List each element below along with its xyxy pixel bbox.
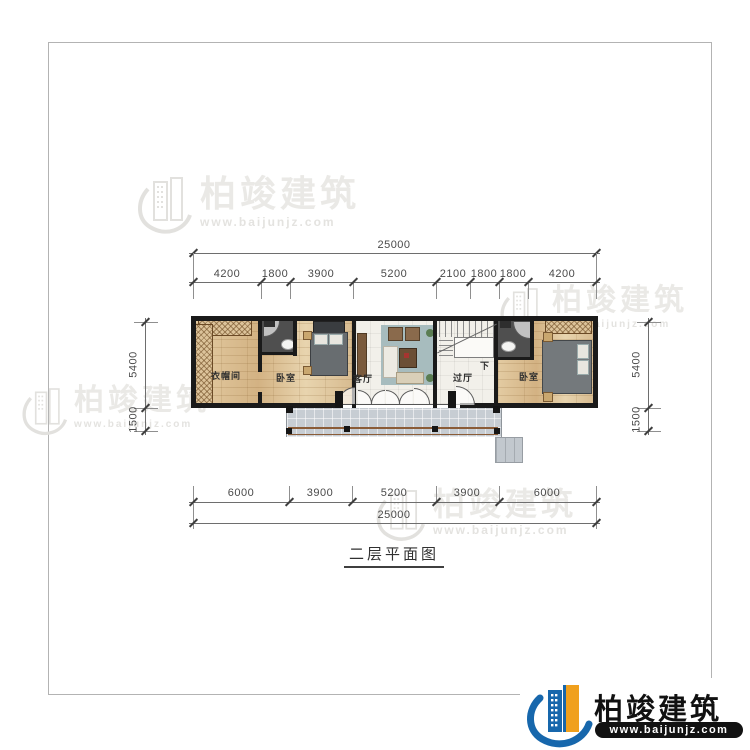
wall-hall-bedroom — [494, 316, 498, 408]
dim-label-left-upper: 5400 — [128, 343, 141, 387]
wall-cloakroom-bedroom-bottom — [258, 392, 262, 408]
coffee-table — [399, 348, 417, 368]
wall-cloakroom-bedroom-top — [258, 316, 262, 372]
dim-label: 4200 — [205, 268, 249, 280]
railing-post — [344, 426, 350, 432]
wall-top — [191, 316, 598, 321]
railing-post — [493, 406, 500, 413]
room-label-living: 客厅 — [343, 372, 383, 385]
bench — [396, 372, 424, 384]
dim-label-right-upper: 5400 — [631, 343, 644, 387]
railing-post — [432, 426, 438, 432]
dim-line-bottom-total — [189, 523, 600, 524]
toilet-right — [501, 341, 516, 352]
watermark-url-text: www.baijunjz.com — [200, 215, 360, 229]
bathroom-right-vanity — [500, 320, 511, 328]
brand-logo-icon — [524, 682, 594, 748]
dim-witness-line — [290, 282, 291, 299]
wall-bottom-left — [191, 403, 340, 408]
bed-right-pillow — [577, 360, 589, 375]
wall-living-hall — [433, 316, 437, 408]
dim-label: 1800 — [253, 268, 297, 280]
dim-label-top-total: 25000 — [372, 239, 416, 251]
dim-witness-line — [353, 282, 354, 299]
railing-post — [286, 428, 292, 434]
bed-left-pillow — [329, 334, 343, 345]
bed-right-pillow — [577, 344, 589, 359]
dim-witness-line — [596, 503, 597, 529]
room-label-cloakroom: 衣帽间 — [206, 369, 246, 382]
table-decor — [404, 353, 409, 358]
stair-down-label: 下 — [479, 359, 491, 372]
wall-bathroom-left-bottom — [262, 352, 297, 355]
watermark-left: 柏竣建筑 www.baijunjz.com — [20, 386, 210, 440]
railing-post — [494, 428, 500, 434]
watermark-building-icon — [135, 176, 193, 238]
drawing-title-underline — [344, 566, 444, 568]
brand-logo: 柏竣建筑 www.baijunjz.com — [520, 678, 750, 750]
armchair — [388, 327, 403, 341]
dim-label: 6000 — [219, 487, 263, 499]
watermark-top-left: 柏竣建筑 www.baijunjz.com — [135, 176, 360, 238]
armchair — [405, 327, 420, 341]
nightstand — [303, 331, 312, 340]
wardrobe-cloakroom-left — [195, 324, 213, 405]
dim-witness-line — [596, 282, 597, 299]
dim-label: 3900 — [299, 268, 343, 280]
dim-witness-line — [261, 282, 262, 299]
nightstand — [543, 392, 553, 402]
dim-witness-line — [499, 282, 500, 299]
dim-witness-line — [193, 282, 194, 299]
dim-witness-line — [596, 253, 597, 282]
dim-label: 3900 — [445, 487, 489, 499]
dim-witness-line — [436, 282, 437, 299]
watermark-url-text: www.baijunjz.com — [433, 523, 577, 537]
dim-line-bottom-segments — [189, 502, 600, 503]
balcony-railing — [288, 427, 498, 435]
wall-left — [191, 316, 196, 408]
wall-bottom-right — [460, 403, 598, 408]
dim-line-top-segments — [189, 282, 600, 283]
balcony-side-platform — [495, 437, 523, 463]
watermark-brand-text: 柏竣建筑 — [552, 286, 688, 316]
room-label-bedroom-left: 卧室 — [266, 371, 306, 384]
brand-url: www.baijunjz.com — [595, 722, 743, 738]
wall-pier — [335, 391, 343, 408]
drawing-title: 二层平面图 — [314, 543, 474, 564]
wall-bathroom-left-right — [293, 316, 297, 356]
dim-label-bottom-total: 25000 — [372, 509, 416, 521]
dim-line-top-total — [189, 253, 600, 254]
dim-witness-line — [528, 282, 529, 299]
dim-label: 3900 — [298, 487, 342, 499]
dim-label: 5200 — [372, 487, 416, 499]
dim-label-right-lower: 1500 — [631, 398, 644, 442]
room-label-hall: 过厅 — [443, 371, 483, 384]
dim-label: 6000 — [525, 487, 569, 499]
nightstand — [543, 332, 553, 342]
wall-right — [593, 316, 598, 408]
dim-witness-line — [193, 253, 194, 282]
dim-label-left-lower: 1500 — [128, 398, 141, 442]
dim-witness-line — [193, 503, 194, 529]
room-label-bedroom-right: 卧室 — [509, 370, 549, 383]
dim-line-left — [145, 318, 146, 435]
railing-post — [286, 406, 293, 413]
dim-line-right — [648, 318, 649, 435]
dim-witness-line — [470, 282, 471, 299]
watermark-url-text: www.baijunjz.com — [74, 419, 210, 430]
wall-bathroom-right-bottom — [497, 357, 534, 360]
watermark-building-icon — [20, 386, 68, 440]
dim-label: 4200 — [540, 268, 584, 280]
wall-bathroom-right-side — [530, 316, 534, 360]
watermark-brand-text: 柏竣建筑 — [200, 176, 360, 212]
door-sill-line — [340, 404, 460, 405]
dim-label: 5200 — [372, 268, 416, 280]
bed-left-pillow — [314, 334, 328, 345]
dim-label: 1800 — [491, 268, 535, 280]
wall-pier — [448, 391, 456, 408]
tv-cabinet — [357, 333, 367, 377]
